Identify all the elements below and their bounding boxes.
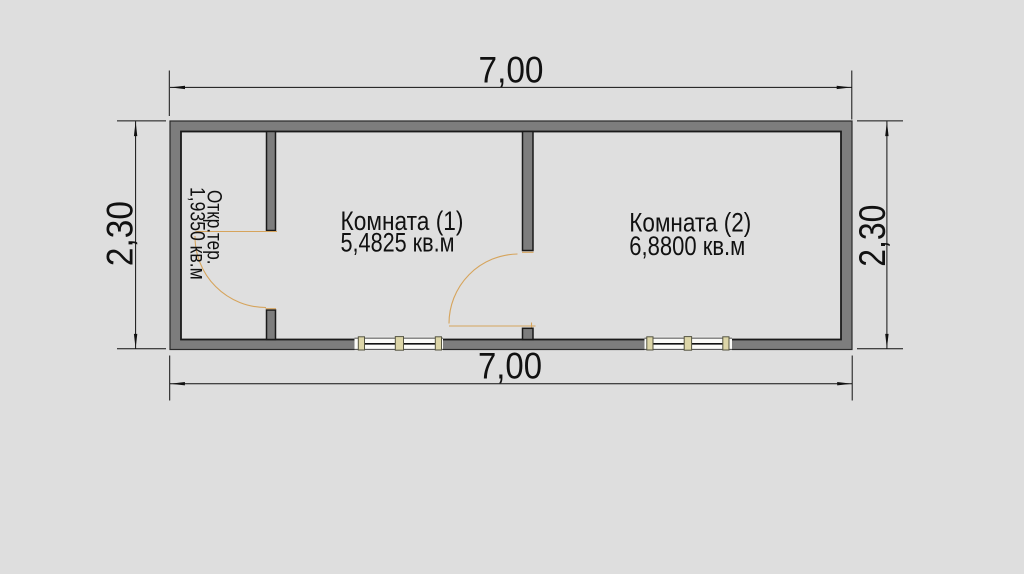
svg-text:2,30: 2,30 xyxy=(99,201,141,266)
svg-text:6,8800 кв.м: 6,8800 кв.м xyxy=(629,231,745,261)
svg-text:5,4825 кв.м: 5,4825 кв.м xyxy=(341,228,455,258)
svg-text:7,00: 7,00 xyxy=(479,48,544,90)
svg-text:2,30: 2,30 xyxy=(851,205,893,267)
svg-text:1,9350 кв.м: 1,9350 кв.м xyxy=(185,187,208,280)
svg-text:7,00: 7,00 xyxy=(478,344,542,386)
